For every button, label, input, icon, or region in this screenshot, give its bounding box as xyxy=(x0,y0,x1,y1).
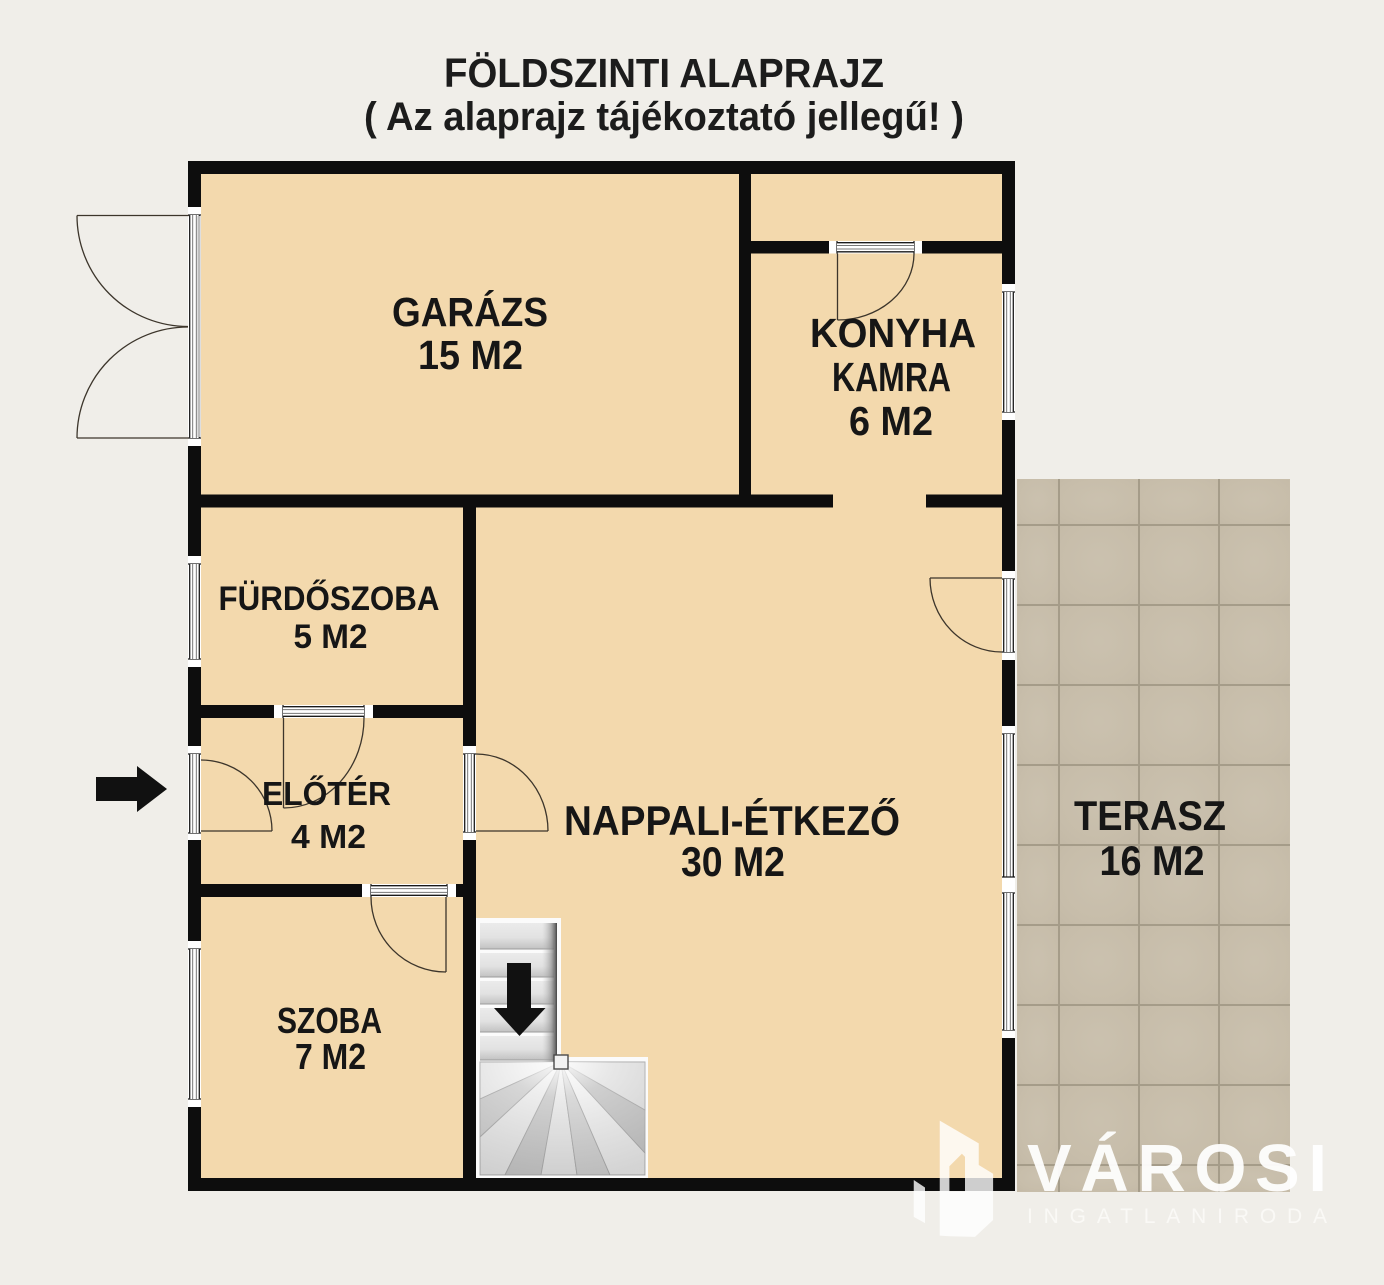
svg-text:4 M2: 4 M2 xyxy=(291,818,366,855)
svg-text:KAMRA: KAMRA xyxy=(832,354,951,400)
svg-text:SZOBA: SZOBA xyxy=(277,1000,382,1041)
svg-text:NAPPALI-ÉTKEZŐ: NAPPALI-ÉTKEZŐ xyxy=(564,797,900,844)
svg-text:FÖLDSZINTI ALAPRAJZ: FÖLDSZINTI ALAPRAJZ xyxy=(444,50,884,96)
svg-text:16 M2: 16 M2 xyxy=(1100,837,1205,884)
svg-text:KONYHA: KONYHA xyxy=(810,310,976,356)
svg-text:( Az alaprajz tájékoztató jell: ( Az alaprajz tájékoztató jellegű! ) xyxy=(364,95,964,139)
svg-text:15 M2: 15 M2 xyxy=(418,332,523,378)
svg-text:5 M2: 5 M2 xyxy=(294,618,368,656)
svg-text:TERASZ: TERASZ xyxy=(1074,792,1226,839)
svg-text:7 M2: 7 M2 xyxy=(295,1036,366,1077)
svg-text:FÜRDŐSZOBA: FÜRDŐSZOBA xyxy=(219,580,440,618)
svg-text:6 M2: 6 M2 xyxy=(849,398,933,444)
svg-text:GARÁZS: GARÁZS xyxy=(392,289,548,335)
svg-text:30 M2: 30 M2 xyxy=(681,838,785,885)
svg-text:ELŐTÉR: ELŐTÉR xyxy=(262,775,391,812)
